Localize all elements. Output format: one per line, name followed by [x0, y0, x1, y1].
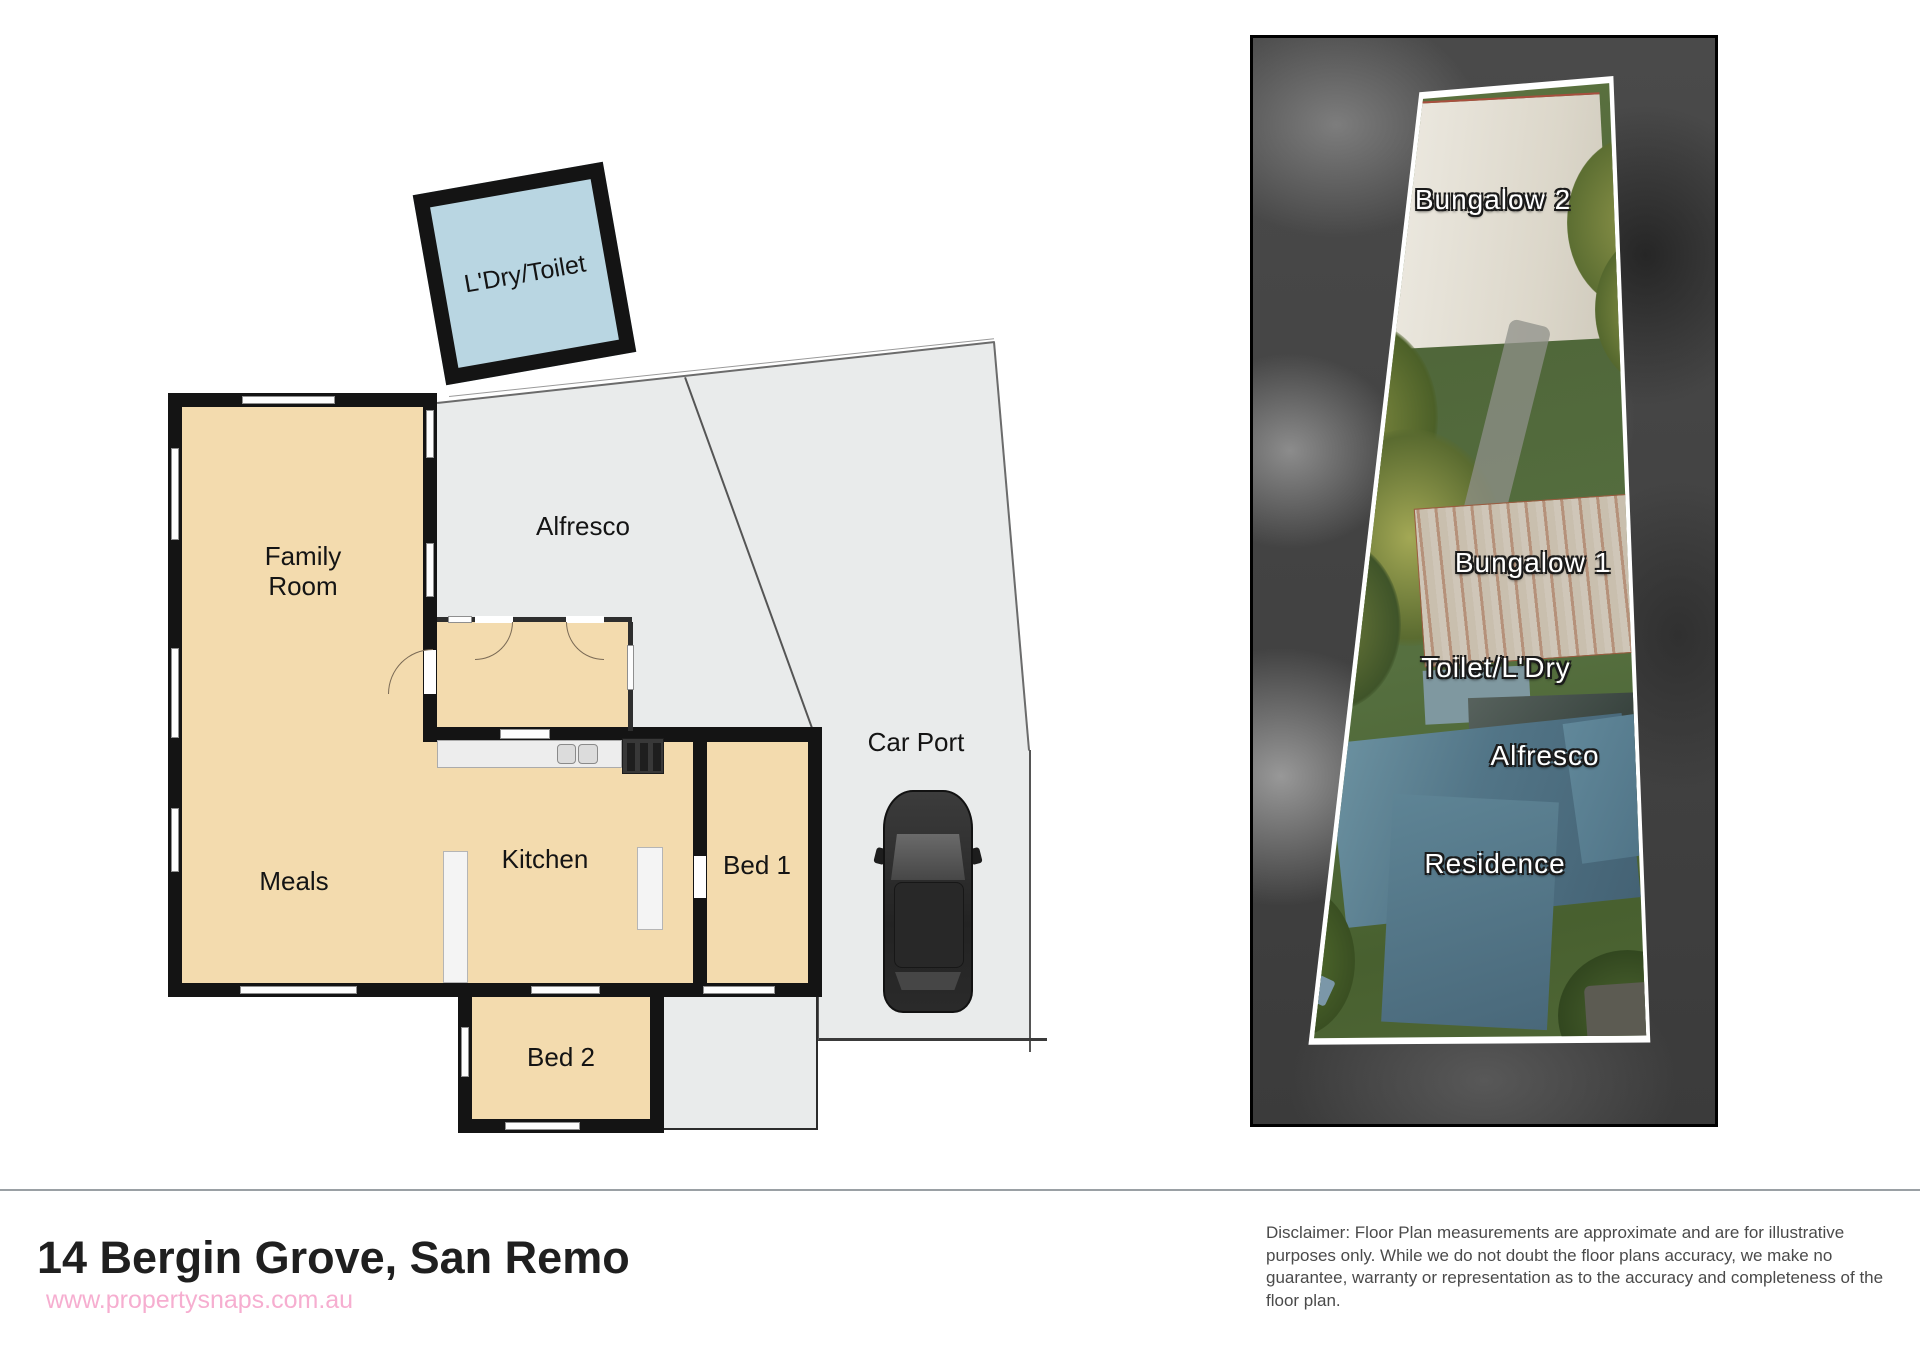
kitchen-sink — [557, 744, 576, 764]
property-address-title: 14 Bergin Grove, San Remo — [37, 1232, 630, 1284]
window-bed2-left — [461, 1027, 469, 1077]
residence-roof-wing — [1381, 794, 1559, 1030]
disclaimer-text: Disclaimer: Floor Plan measurements are … — [1266, 1222, 1884, 1312]
wall-bed2-right — [650, 997, 664, 1133]
label-bed2: Bed 2 — [527, 1042, 595, 1072]
car-rear-window — [895, 972, 961, 990]
footer-divider — [0, 1189, 1920, 1191]
tree — [1262, 538, 1401, 712]
label-alfresco: Alfresco — [536, 511, 630, 541]
window-bottom-2 — [531, 986, 600, 994]
aerial-label-bungalow2: Bungalow 2 — [1415, 184, 1571, 216]
car-icon — [883, 790, 973, 1013]
window-pantry-top — [448, 616, 472, 623]
label-family-room: Family Room — [265, 541, 342, 601]
car-windshield — [891, 834, 965, 880]
window-bed1-bottom — [703, 986, 775, 994]
aerial-photo: Bungalow 2 Bungalow 1 Toilet/L'Dry Alfre… — [1250, 35, 1718, 1127]
window-family-right-2 — [426, 543, 434, 597]
window-family-right-1 — [426, 410, 434, 458]
kitchen-fridge — [637, 847, 663, 930]
tree — [1253, 885, 1355, 1037]
label-family-line1: Family — [265, 541, 342, 571]
label-family-line2: Room — [268, 571, 337, 601]
label-carport: Car Port — [868, 727, 965, 757]
window-bottom-1 — [240, 986, 357, 994]
tree — [1567, 136, 1706, 310]
window-kitchen-top — [500, 729, 550, 739]
kitchen-sink-2 — [578, 744, 598, 764]
aerial-label-bungalow1: Bungalow 1 — [1455, 547, 1611, 579]
kitchen-island — [443, 851, 468, 983]
aerial-label-residence: Residence — [1424, 848, 1565, 880]
window-left-2 — [171, 648, 179, 738]
label-bed1: Bed 1 — [723, 850, 791, 880]
floor-plan-page: L'Dry/Toilet Family Room Alfresco Meals … — [0, 0, 1920, 1357]
aerial-label-toilet-ldry: Toilet/L'Dry — [1421, 652, 1571, 684]
window-left-3 — [171, 808, 179, 872]
tree — [1595, 233, 1715, 385]
wall-bed1-right — [808, 728, 822, 997]
door-bed1 — [694, 856, 706, 898]
label-kitchen: Kitchen — [502, 844, 589, 874]
watermark-url: www.propertysnaps.com.au — [46, 1286, 353, 1315]
carport-right-edge-lower — [1029, 750, 1031, 1052]
aerial-label-alfresco: Alfresco — [1490, 740, 1599, 772]
window-top — [242, 396, 335, 404]
window-bed2-bottom — [505, 1122, 580, 1130]
window-pantry-right — [627, 645, 634, 690]
rear-porch — [658, 993, 818, 1130]
family-meals-floor — [182, 407, 423, 983]
residence-roof-right — [1562, 711, 1673, 864]
label-meals: Meals — [259, 866, 328, 896]
carport-bottom-edge — [818, 1038, 1047, 1041]
kitchen-stove — [622, 738, 664, 774]
window-left-1 — [171, 448, 179, 540]
car-roof — [894, 882, 964, 968]
